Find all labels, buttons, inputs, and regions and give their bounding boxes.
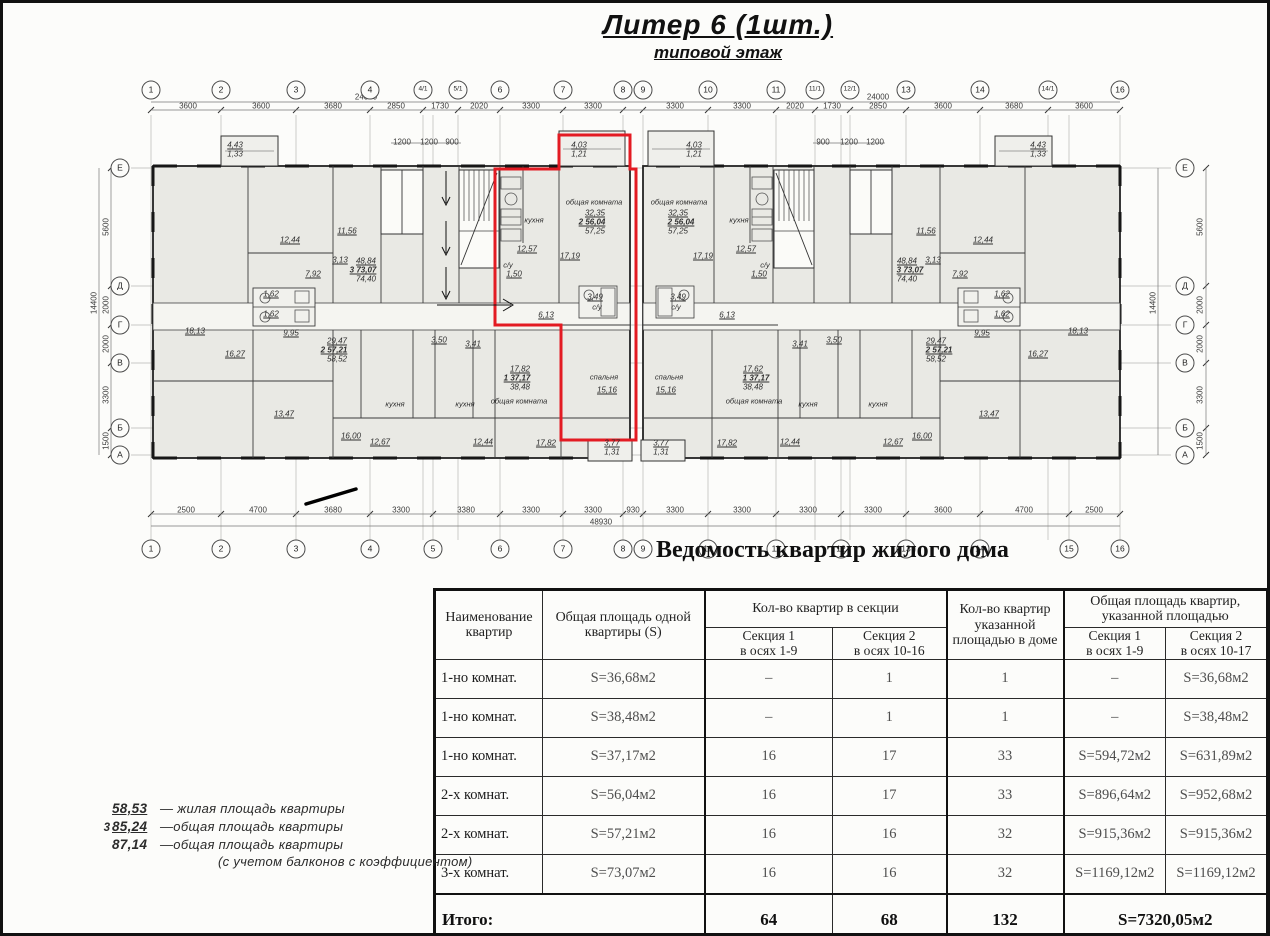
axis-marker-6: 6 xyxy=(491,81,510,100)
room-label: 4,03 xyxy=(571,141,587,150)
table-row: 3-х комнат.S=73,07м2161632S=1169,12м2S=1… xyxy=(435,855,1268,895)
table-cell: 33 xyxy=(947,738,1064,777)
room-label: 57,25 xyxy=(585,227,605,236)
table-cell: S=38,48м2 xyxy=(1166,699,1268,738)
axis-marker-Е: Е xyxy=(1176,159,1195,178)
room-label: с/у xyxy=(671,303,681,312)
axis-marker-А: А xyxy=(111,446,130,465)
axis-marker-7: 7 xyxy=(554,81,573,100)
room-label: кухня xyxy=(385,400,404,409)
room-label: общая комната xyxy=(566,198,623,207)
dimension-label: 3600 xyxy=(934,102,952,111)
axis-marker-13: 13 xyxy=(897,81,916,100)
room-label: 12,44 xyxy=(973,236,993,245)
axis-marker-14: 14 xyxy=(971,81,990,100)
room-label: 17,19 xyxy=(693,252,713,261)
room-label: общая комната xyxy=(651,198,708,207)
room-label: 4,43 xyxy=(227,141,243,150)
room-label: общая комната xyxy=(491,397,548,406)
room-label: 3,50 xyxy=(431,336,447,345)
table-cell: 32 xyxy=(947,855,1064,895)
dimension-label: 1730 xyxy=(823,102,841,111)
axis-marker-Г: Г xyxy=(1176,316,1195,335)
room-label: 1 37,17 xyxy=(743,374,770,383)
legend-description: — жилая площадь квартиры xyxy=(160,801,345,818)
table-cell: – xyxy=(1064,699,1166,738)
room-label: 15,16 xyxy=(656,386,676,395)
room-label: 17,19 xyxy=(560,252,580,261)
dimension-label: 2020 xyxy=(786,102,804,111)
axis-marker-15: 15 xyxy=(1060,540,1079,559)
room-label: 3 73,07 xyxy=(350,266,377,275)
room-label: 1 37,17 xyxy=(504,374,531,383)
table-cell: S=36,68м2 xyxy=(1166,660,1268,699)
dimension-label: 3680 xyxy=(324,506,342,515)
room-label: 16,00 xyxy=(912,432,932,441)
table-cell: 1 xyxy=(833,699,947,738)
room-label: 58,52 xyxy=(926,355,946,364)
total-house: 132 xyxy=(947,894,1064,936)
dimension-label: 2000 xyxy=(1196,296,1205,314)
room-label: 17,82 xyxy=(536,439,556,448)
room-label: 17,82 xyxy=(717,439,737,448)
dimension-label: 3600 xyxy=(1075,102,1093,111)
legend-item: 385,24—общая площадь квартиры xyxy=(97,818,472,836)
floor-plan: 12344/15/16789101111/112/1131414/1161234… xyxy=(3,3,1270,578)
legend-item: 58,53— жилая площадь квартиры xyxy=(97,800,472,818)
room-label: спальня xyxy=(590,373,618,382)
dimension-label: 1500 xyxy=(1196,432,1205,450)
room-label: 2 57,21 xyxy=(321,346,348,355)
axis-marker-10: 10 xyxy=(699,81,718,100)
axis-marker-8: 8 xyxy=(614,540,633,559)
axis-marker-9: 9 xyxy=(634,540,653,559)
axis-marker-4: 4 xyxy=(361,540,380,559)
room-label: 3,50 xyxy=(826,336,842,345)
table-cell: 1-но комнат. xyxy=(435,699,543,738)
table-cell: – xyxy=(705,660,833,699)
axis-marker-2: 2 xyxy=(212,540,231,559)
table-cell: 1 xyxy=(947,660,1064,699)
axis-marker-11/1: 11/1 xyxy=(806,81,825,100)
dimension-label: 1500 xyxy=(102,432,111,450)
axis-marker-Д: Д xyxy=(111,277,130,296)
room-label: 4,43 xyxy=(1030,141,1046,150)
hand-drawn-mark xyxy=(306,489,356,504)
axis-marker-1: 1 xyxy=(142,540,161,559)
dimension-label: 3600 xyxy=(934,506,952,515)
room-label: 17,62 xyxy=(743,365,763,374)
table-cell: 33 xyxy=(947,777,1064,816)
axis-marker-6: 6 xyxy=(491,540,510,559)
table-cell: S=56,04м2 xyxy=(543,777,705,816)
total-row: Итого: 64 68 132 S=7320,05м2 xyxy=(435,894,1268,936)
header-area-total: Общая площадь квартир, указанной площадь… xyxy=(1064,590,1268,628)
room-label: кухня xyxy=(868,400,887,409)
dimension-label: 24000 xyxy=(867,93,889,102)
axis-marker-Б: Б xyxy=(111,419,130,438)
dimension-label: 1200 xyxy=(866,138,884,147)
room-label: 16,27 xyxy=(225,350,245,359)
axis-marker-16: 16 xyxy=(1111,81,1130,100)
room-label: 9,95 xyxy=(974,329,990,338)
room-label: 7,92 xyxy=(952,270,968,279)
table-cell: S=57,21м2 xyxy=(543,816,705,855)
elevator-icon xyxy=(381,170,423,234)
table-cell: 16 xyxy=(833,816,947,855)
room-label: 1,62 xyxy=(263,290,279,299)
room-label: 6,13 xyxy=(538,311,554,320)
table-cell: 17 xyxy=(833,738,947,777)
axis-marker-14/1: 14/1 xyxy=(1039,81,1058,100)
header-name: Наименование квартир xyxy=(435,590,543,660)
dimension-label: 3300 xyxy=(1196,386,1205,404)
table-row: 1-но комнат.S=38,48м2–11–S=38,48м2 xyxy=(435,699,1268,738)
room-label: 18,13 xyxy=(1068,327,1088,336)
room-label: 16,27 xyxy=(1028,350,1048,359)
dimension-label: 900 xyxy=(816,138,829,147)
room-label: 12,44 xyxy=(280,236,300,245)
room-label: 57,25 xyxy=(668,227,688,236)
room-label: 18,13 xyxy=(185,327,205,336)
dimension-label: 900 xyxy=(445,138,458,147)
room-label: 4,03 xyxy=(686,141,702,150)
dimension-label: 1730 xyxy=(431,102,449,111)
room-label: 6,13 xyxy=(719,311,735,320)
room-label: 12,44 xyxy=(473,438,493,447)
dimension-label: 2500 xyxy=(177,506,195,515)
dimension-label: 1200 xyxy=(840,138,858,147)
legend-room-count: 3 xyxy=(97,821,110,836)
table-row: 1-но комнат.S=36,68м2–11–S=36,68м2 xyxy=(435,660,1268,699)
room-label: 1,21 xyxy=(571,150,587,159)
room-label: 48,84 xyxy=(897,257,917,266)
room-label: 1,62 xyxy=(994,310,1010,319)
table-cell: 16 xyxy=(705,855,833,895)
table-cell: S=38,48м2 xyxy=(543,699,705,738)
dimension-label: 3600 xyxy=(252,102,270,111)
dimension-label: 2000 xyxy=(1196,335,1205,353)
table-cell: S=915,36м2 xyxy=(1064,816,1166,855)
room-label: 1,62 xyxy=(263,310,279,319)
room-label: 3,49 xyxy=(587,293,603,302)
table-cell: 16 xyxy=(705,816,833,855)
legend-item: 87,14—общая площадь квартиры xyxy=(97,836,472,854)
room-label: кухня xyxy=(798,400,817,409)
dimension-label: 5600 xyxy=(1196,218,1205,236)
axis-marker-Е: Е xyxy=(111,159,130,178)
dimension-label: 2020 xyxy=(470,102,488,111)
dimension-label: 2000 xyxy=(102,296,111,314)
dimension-label: 930 xyxy=(626,506,639,515)
legend-item: (с учетом балконов с коэффициентом) xyxy=(97,854,472,871)
room-label: 2 56,04 xyxy=(668,218,695,227)
legend-description: —общая площадь квартиры xyxy=(160,819,343,836)
room-label: 29,47 xyxy=(926,337,946,346)
axis-marker-3: 3 xyxy=(287,540,306,559)
room-label: с/у xyxy=(503,261,513,270)
room-label: 3,49 xyxy=(670,293,686,302)
drawing-sheet: Литер 6 (1шт.) типовой этаж xyxy=(0,0,1270,936)
axis-marker-2: 2 xyxy=(212,81,231,100)
dimension-label: 3380 xyxy=(457,506,475,515)
total-sec2: 68 xyxy=(833,894,947,936)
dimension-label: 3300 xyxy=(799,506,817,515)
room-label: 16,00 xyxy=(341,432,361,441)
room-label: 12,67 xyxy=(370,438,390,447)
room-label: 48,84 xyxy=(356,257,376,266)
dimension-label: 3300 xyxy=(733,506,751,515)
axis-marker-Г: Г xyxy=(111,316,130,335)
table-cell: S=896,64м2 xyxy=(1064,777,1166,816)
room-label: 17,82 xyxy=(510,365,530,374)
room-label: 12,57 xyxy=(517,245,537,254)
room-label: 38,48 xyxy=(510,383,530,392)
dimension-label: 2850 xyxy=(869,102,887,111)
axis-marker-5/1: 5/1 xyxy=(449,81,468,100)
dimension-label: 1200 xyxy=(420,138,438,147)
room-label: 3,41 xyxy=(465,340,481,349)
axis-marker-В: В xyxy=(111,354,130,373)
room-label: 12,67 xyxy=(883,438,903,447)
table-cell: 17 xyxy=(833,777,947,816)
room-label: общая комната xyxy=(726,397,783,406)
table-row: 1-но комнат.S=37,17м2161733S=594,72м2S=6… xyxy=(435,738,1268,777)
axis-marker-В: В xyxy=(1176,354,1195,373)
room-label: 1,62 xyxy=(994,290,1010,299)
axis-marker-4/1: 4/1 xyxy=(414,81,433,100)
table-cell: – xyxy=(705,699,833,738)
table-cell: 1-но комнат. xyxy=(435,660,543,699)
axis-marker-9: 9 xyxy=(634,81,653,100)
table-cell: S=73,07м2 xyxy=(543,855,705,895)
subheader-count-sec2: Секция 2 в осях 10-16 xyxy=(833,628,947,660)
room-label: 12,57 xyxy=(736,245,756,254)
dimension-label: 14400 xyxy=(90,292,99,314)
room-label: 12,44 xyxy=(780,438,800,447)
axis-marker-12/1: 12/1 xyxy=(841,81,860,100)
table-cell: 32 xyxy=(947,816,1064,855)
table-caption: Ведомость квартир жилого дома xyxy=(656,537,1009,564)
room-label: 15,16 xyxy=(597,386,617,395)
subheader-count-sec1: Секция 1 в осях 1-9 xyxy=(705,628,833,660)
dimension-label: 3300 xyxy=(733,102,751,111)
axis-marker-8: 8 xyxy=(614,81,633,100)
dimension-label: 2000 xyxy=(102,335,111,353)
legend-description: (с учетом балконов с коэффициентом) xyxy=(218,854,472,871)
table-cell: S=37,17м2 xyxy=(543,738,705,777)
table-cell: 16 xyxy=(705,738,833,777)
room-label: 1,33 xyxy=(227,150,243,159)
dimension-label: 3300 xyxy=(392,506,410,515)
axis-marker-Д: Д xyxy=(1176,277,1195,296)
table-cell: S=594,72м2 xyxy=(1064,738,1166,777)
axis-marker-5: 5 xyxy=(424,540,443,559)
table-cell: – xyxy=(1064,660,1166,699)
room-label: 9,95 xyxy=(283,329,299,338)
room-label: 3,41 xyxy=(792,340,808,349)
room-label: с/у xyxy=(592,303,602,312)
room-label: 3,13 xyxy=(925,256,941,265)
room-label: 1,50 xyxy=(506,270,522,279)
room-label: 1,33 xyxy=(1030,150,1046,159)
axis-marker-3: 3 xyxy=(287,81,306,100)
room-label: 2 57,21 xyxy=(926,346,953,355)
dimension-label: 14400 xyxy=(1149,292,1158,314)
table-cell: S=1169,12м2 xyxy=(1064,855,1166,895)
dimension-label: 3300 xyxy=(584,102,602,111)
dimension-label: 3600 xyxy=(179,102,197,111)
room-label: 74,40 xyxy=(356,275,376,284)
room-label: 3,77 xyxy=(653,439,669,448)
dimension-label: 3300 xyxy=(666,506,684,515)
axis-marker-1: 1 xyxy=(142,81,161,100)
room-label: 11,56 xyxy=(916,227,935,236)
table-cell: S=952,68м2 xyxy=(1166,777,1268,816)
room-label: 2 56,04 xyxy=(579,218,606,227)
legend-area-value: 58,53 xyxy=(112,800,156,818)
room-label: 13,47 xyxy=(979,410,999,419)
room-label: кухня xyxy=(524,216,543,225)
axis-marker-7: 7 xyxy=(554,540,573,559)
room-label: кухня xyxy=(729,216,748,225)
room-label: 1,21 xyxy=(686,150,702,159)
dimension-label: 3300 xyxy=(584,506,602,515)
axis-marker-11: 11 xyxy=(767,81,786,100)
dimension-label: 3300 xyxy=(102,386,111,404)
header-count-house: Кол-во квартир указанной площадью в доме xyxy=(947,590,1064,660)
room-label: кухня xyxy=(455,400,474,409)
axis-marker-Б: Б xyxy=(1176,419,1195,438)
stair-icon xyxy=(459,170,499,268)
table-cell: 1 xyxy=(947,699,1064,738)
room-label: 11,56 xyxy=(337,227,356,236)
table-cell: 16 xyxy=(833,855,947,895)
dimension-label: 5600 xyxy=(102,218,111,236)
table-row: 2-х комнат.S=56,04м2161733S=896,64м2S=95… xyxy=(435,777,1268,816)
dimension-label: 4700 xyxy=(249,506,267,515)
table-cell: 1 xyxy=(833,660,947,699)
total-sec1: 64 xyxy=(705,894,833,936)
axis-marker-4: 4 xyxy=(361,81,380,100)
room-label: 3,77 xyxy=(604,439,620,448)
room-label: 29,47 xyxy=(327,337,347,346)
dimension-label: 48930 xyxy=(590,518,612,527)
room-label: 38,48 xyxy=(743,383,763,392)
room-label: 7,92 xyxy=(305,270,321,279)
table-cell: S=36,68м2 xyxy=(543,660,705,699)
table-cell: 1-но комнат. xyxy=(435,738,543,777)
room-label: 1,31 xyxy=(604,448,620,457)
legend-area-value: 85,24 xyxy=(112,818,156,836)
room-label: 58,52 xyxy=(327,355,347,364)
room-label: 74,40 xyxy=(897,275,917,284)
room-label: 1,50 xyxy=(751,270,767,279)
dimension-label: 3300 xyxy=(522,506,540,515)
room-label: 3 73,07 xyxy=(897,266,924,275)
dimension-label: 1200 xyxy=(393,138,411,147)
dimension-label: 3680 xyxy=(1005,102,1023,111)
axis-marker-А: А xyxy=(1176,446,1195,465)
table-cell: 16 xyxy=(705,777,833,816)
axis-marker-16: 16 xyxy=(1111,540,1130,559)
dimension-label: 4700 xyxy=(1015,506,1033,515)
dimension-label: 2500 xyxy=(1085,506,1103,515)
apartments-table: Наименование квартир Общая площадь одной… xyxy=(433,588,1269,936)
legend-area-value: 87,14 xyxy=(112,836,156,854)
room-label: 1,31 xyxy=(653,448,669,457)
dimension-label: 3300 xyxy=(864,506,882,515)
total-area: S=7320,05м2 xyxy=(1064,894,1268,936)
room-label: 13,47 xyxy=(274,410,294,419)
table-cell: S=631,89м2 xyxy=(1166,738,1268,777)
header-count-section: Кол-во квартир в секции xyxy=(705,590,947,628)
table-cell: S=915,36м2 xyxy=(1166,816,1268,855)
dimension-label: 3300 xyxy=(666,102,684,111)
table-cell: S=1169,12м2 xyxy=(1166,855,1268,895)
room-label: с/у xyxy=(760,261,770,270)
header-area-one: Общая площадь одной квартиры (S) xyxy=(543,590,705,660)
dimension-label: 3300 xyxy=(522,102,540,111)
room-label: 32,35 xyxy=(668,209,688,218)
legend-description: —общая площадь квартиры xyxy=(160,837,343,854)
dimension-label: 2850 xyxy=(387,102,405,111)
total-label: Итого: xyxy=(435,894,705,936)
table-row: 2-х комнат.S=57,21м2161632S=915,36м2S=91… xyxy=(435,816,1268,855)
room-label: спальня xyxy=(655,373,683,382)
subheader-area-sec1: Секция 1 в осях 1-9 xyxy=(1064,628,1166,660)
room-label: 32,35 xyxy=(585,209,605,218)
subheader-area-sec2: Секция 2 в осях 10-17 xyxy=(1166,628,1268,660)
room-label: 3,13 xyxy=(332,256,348,265)
dimension-label: 3680 xyxy=(324,102,342,111)
area-legend: 58,53— жилая площадь квартиры385,24—обща… xyxy=(97,800,472,871)
